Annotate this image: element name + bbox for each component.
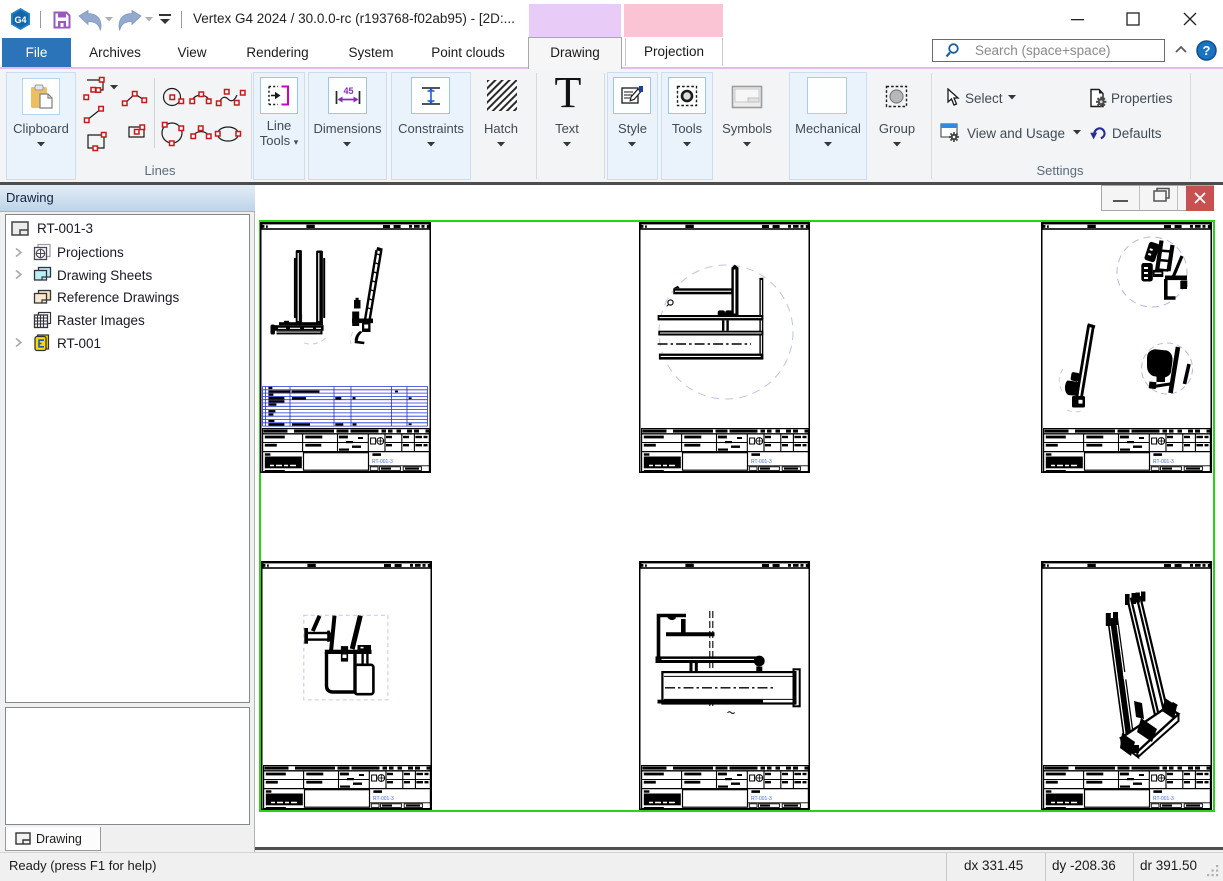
svg-text:?: ? [1203, 43, 1211, 58]
svg-text:G4: G4 [14, 15, 26, 25]
svg-text:45: 45 [343, 86, 353, 96]
